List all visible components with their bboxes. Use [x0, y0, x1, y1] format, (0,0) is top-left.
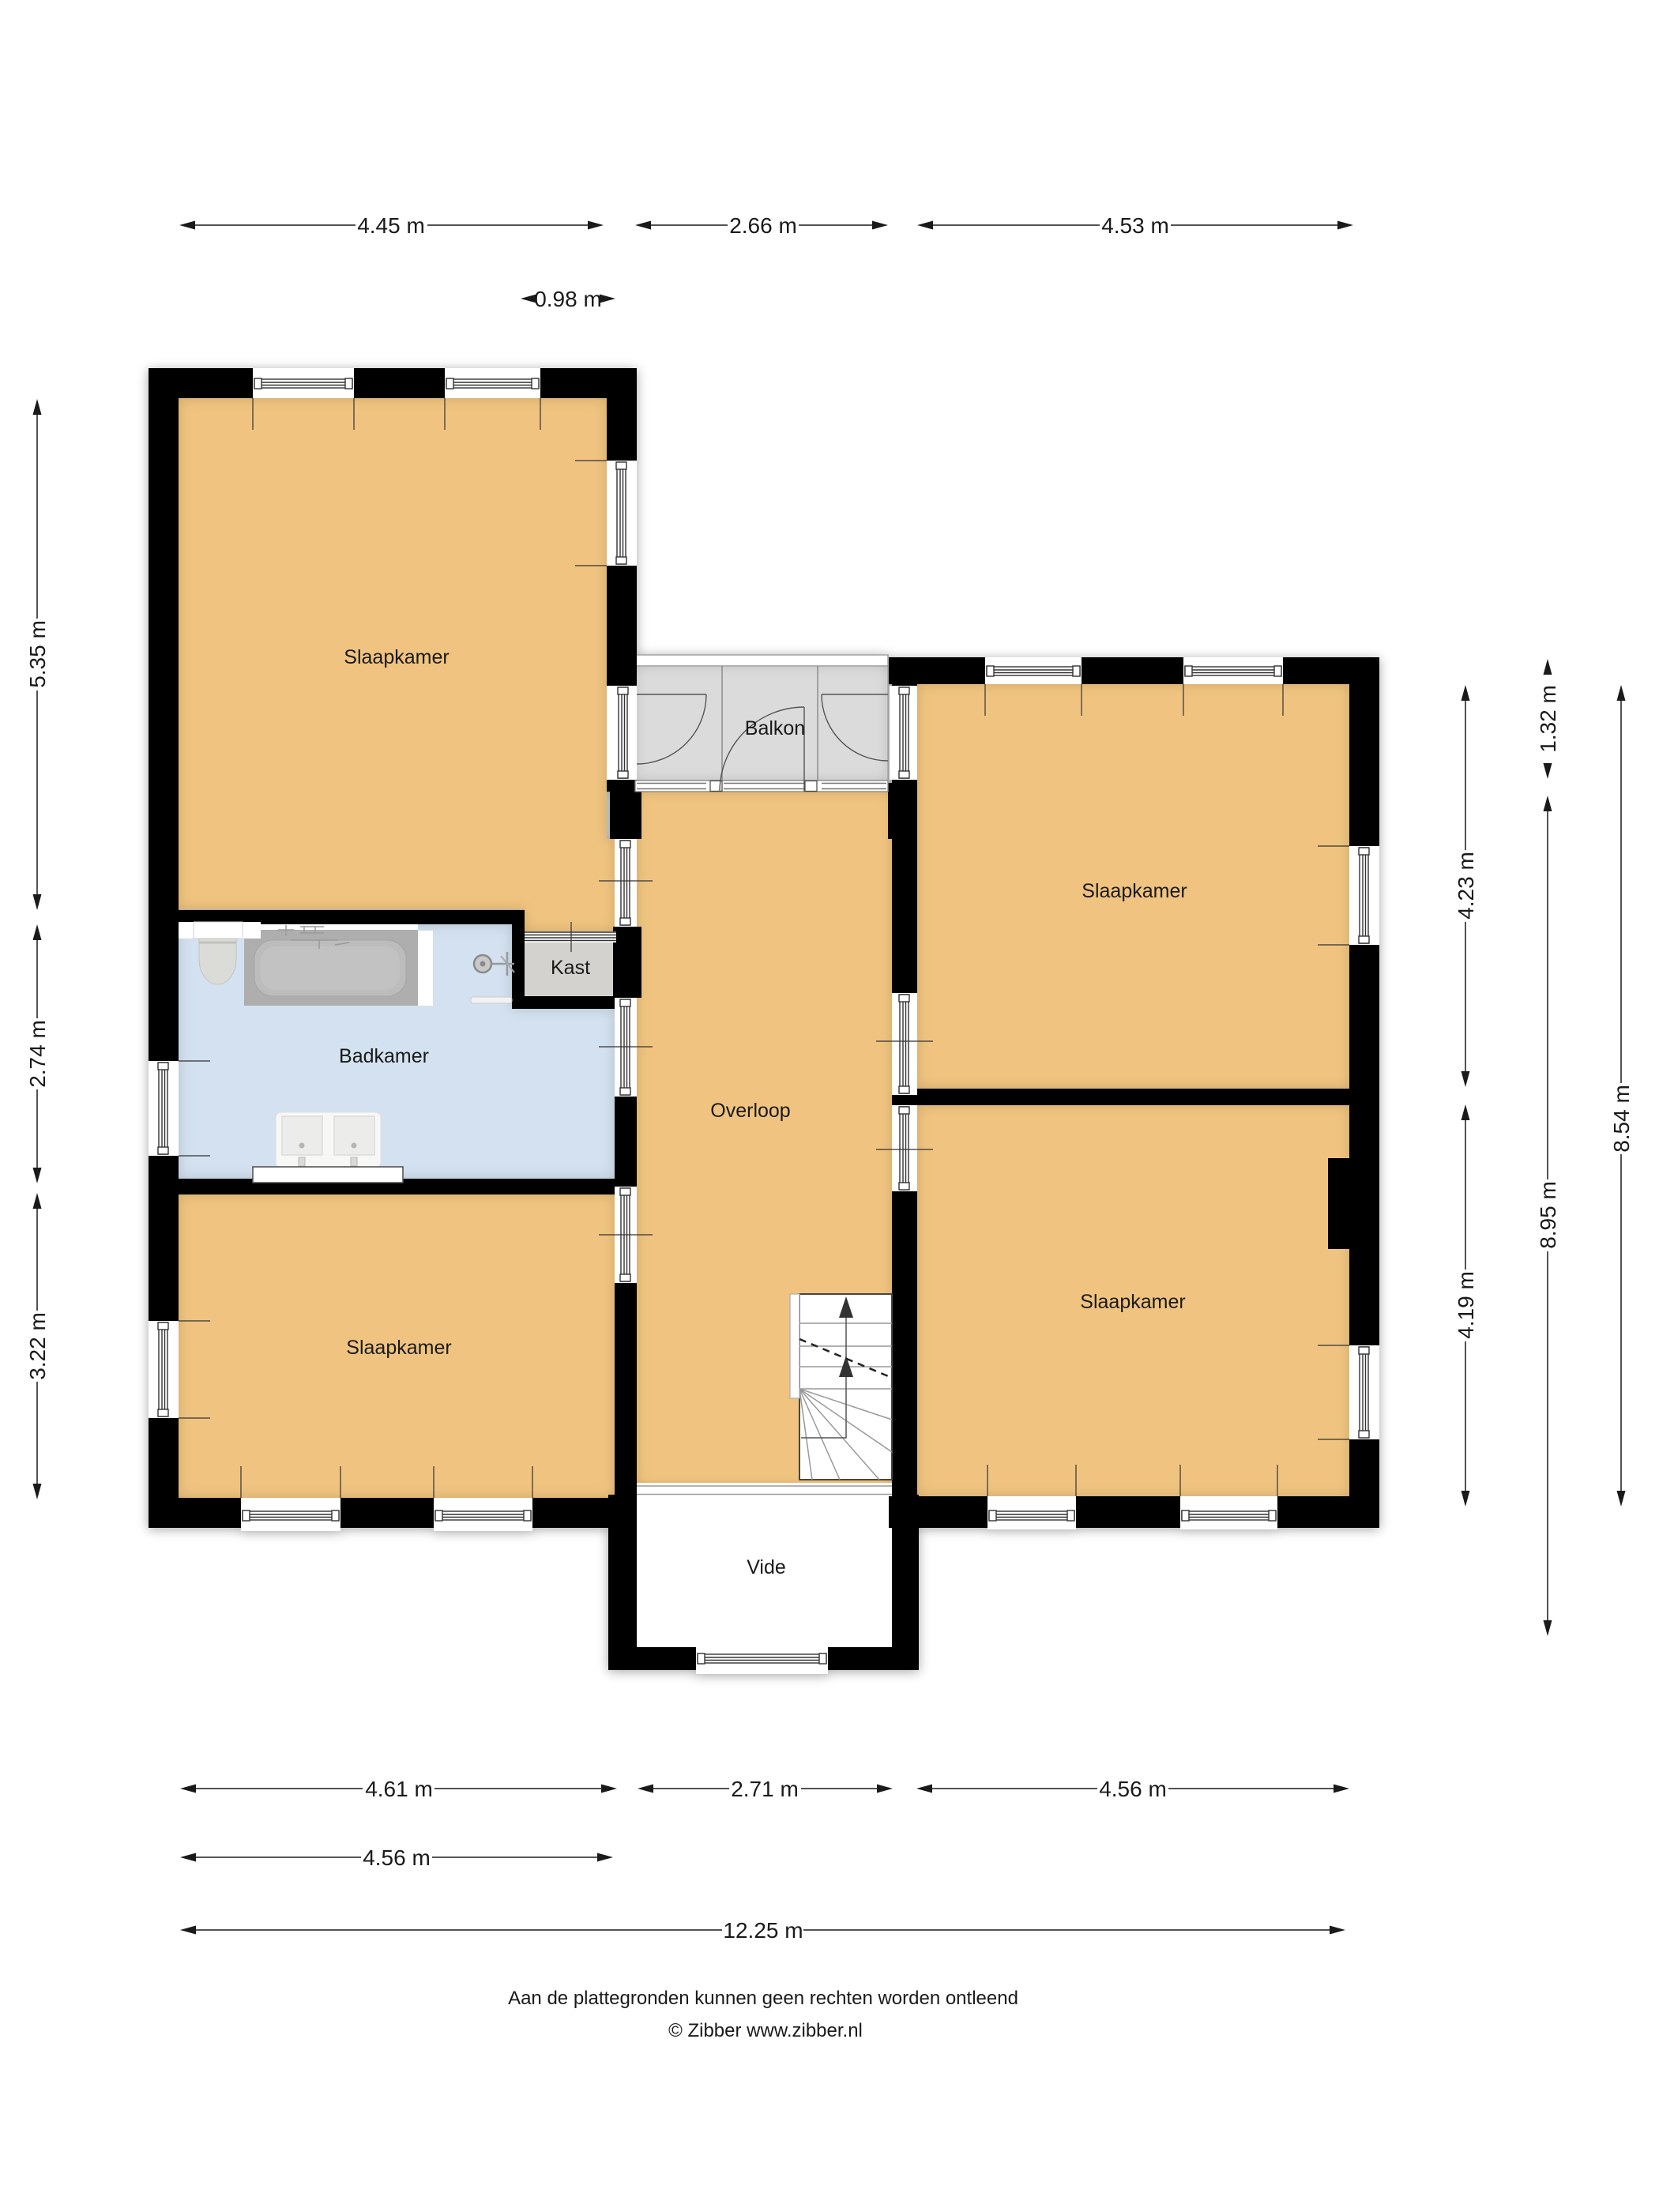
svg-text:4.19 m: 4.19 m — [1454, 1271, 1478, 1339]
svg-text:8.95 m: 8.95 m — [1536, 1181, 1560, 1249]
svg-text:4.23 m: 4.23 m — [1454, 852, 1478, 920]
svg-text:© Zibber www.zibber.nl: © Zibber www.zibber.nl — [668, 2020, 863, 2041]
svg-text:4.53 m: 4.53 m — [1101, 213, 1169, 238]
svg-text:2.71 m: 2.71 m — [731, 1777, 799, 1801]
svg-text:Kast: Kast — [551, 957, 590, 979]
svg-text:Aan de plattegronden kunnen ge: Aan de plattegronden kunnen geen rechten… — [508, 1988, 1018, 2009]
svg-text:Badkamer: Badkamer — [339, 1045, 429, 1067]
svg-text:Balkon: Balkon — [745, 717, 805, 739]
svg-text:4.61 m: 4.61 m — [365, 1777, 433, 1801]
svg-text:4.45 m: 4.45 m — [357, 213, 425, 238]
svg-text:Slaapkamer: Slaapkamer — [1082, 880, 1187, 902]
svg-text:3.22 m: 3.22 m — [25, 1312, 50, 1380]
svg-text:4.56 m: 4.56 m — [363, 1845, 431, 1870]
svg-text:2.74 m: 2.74 m — [25, 1020, 50, 1088]
svg-text:8.54 m: 8.54 m — [1609, 1085, 1634, 1153]
svg-text:4.56 m: 4.56 m — [1099, 1777, 1167, 1801]
svg-text:Overloop: Overloop — [710, 1100, 790, 1122]
svg-text:Slaapkamer: Slaapkamer — [1080, 1291, 1185, 1313]
svg-text:0.98 m: 0.98 m — [534, 287, 602, 311]
svg-text:1.32 m: 1.32 m — [1536, 685, 1560, 753]
svg-text:Vide: Vide — [747, 1556, 786, 1578]
svg-text:Slaapkamer: Slaapkamer — [346, 1337, 451, 1359]
svg-text:5.35 m: 5.35 m — [25, 620, 50, 688]
svg-text:2.66 m: 2.66 m — [729, 213, 797, 238]
svg-text:12.25 m: 12.25 m — [723, 1918, 803, 1943]
svg-text:Slaapkamer: Slaapkamer — [344, 646, 449, 668]
